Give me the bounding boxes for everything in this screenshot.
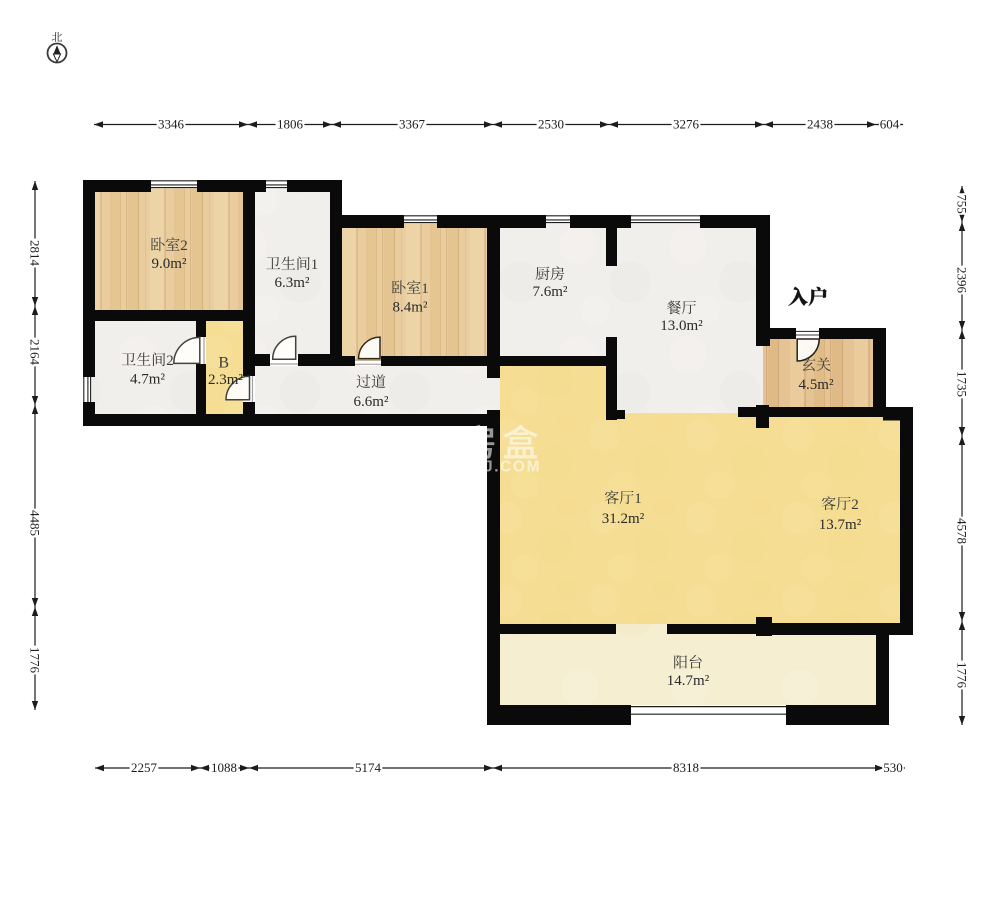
- svg-text:755: 755: [955, 194, 970, 214]
- svg-text:2164: 2164: [28, 339, 43, 366]
- svg-text:4.5m²: 4.5m²: [799, 377, 834, 393]
- svg-text:9.0m²: 9.0m²: [152, 256, 187, 272]
- svg-text:1735: 1735: [955, 371, 970, 397]
- svg-text:1: 1: [634, 491, 642, 507]
- svg-text:1776: 1776: [28, 647, 43, 674]
- svg-text:2.3m²: 2.3m²: [208, 372, 243, 388]
- svg-text:1: 1: [311, 257, 319, 273]
- svg-text:1: 1: [421, 281, 429, 297]
- svg-text:4485: 4485: [28, 510, 43, 536]
- svg-text:B: B: [218, 355, 229, 372]
- svg-text:604: 604: [880, 117, 900, 132]
- svg-text:1806: 1806: [277, 117, 304, 132]
- svg-text:6.6m²: 6.6m²: [354, 394, 389, 410]
- svg-text:5174: 5174: [355, 760, 382, 775]
- svg-text:3367: 3367: [399, 117, 426, 132]
- svg-text:8.4m²: 8.4m²: [393, 300, 428, 316]
- svg-text:2257: 2257: [131, 760, 158, 775]
- svg-text:2: 2: [166, 353, 174, 369]
- svg-text:7.6m²: 7.6m²: [533, 284, 568, 300]
- svg-text:530: 530: [883, 760, 903, 775]
- svg-text:2438: 2438: [807, 117, 833, 132]
- svg-text:2814: 2814: [28, 240, 43, 267]
- svg-text:1088: 1088: [211, 760, 237, 775]
- svg-text:2: 2: [851, 497, 859, 513]
- svg-text:1776: 1776: [955, 662, 970, 689]
- svg-text:2530: 2530: [538, 117, 564, 132]
- svg-text:8318: 8318: [673, 760, 699, 775]
- svg-text:3346: 3346: [158, 117, 185, 132]
- svg-text:3276: 3276: [673, 117, 700, 132]
- svg-text:6.3m²: 6.3m²: [275, 275, 310, 291]
- svg-text:J.COM: J.COM: [484, 459, 541, 476]
- svg-text:2: 2: [180, 238, 188, 254]
- svg-text:13.0m²: 13.0m²: [660, 318, 703, 334]
- svg-text:14.7m²: 14.7m²: [667, 673, 710, 689]
- svg-text:31.2m²: 31.2m²: [602, 511, 645, 527]
- svg-text:4578: 4578: [955, 518, 970, 544]
- svg-text:13.7m²: 13.7m²: [819, 517, 862, 533]
- svg-text:2396: 2396: [955, 267, 970, 294]
- svg-text:4.7m²: 4.7m²: [130, 372, 165, 388]
